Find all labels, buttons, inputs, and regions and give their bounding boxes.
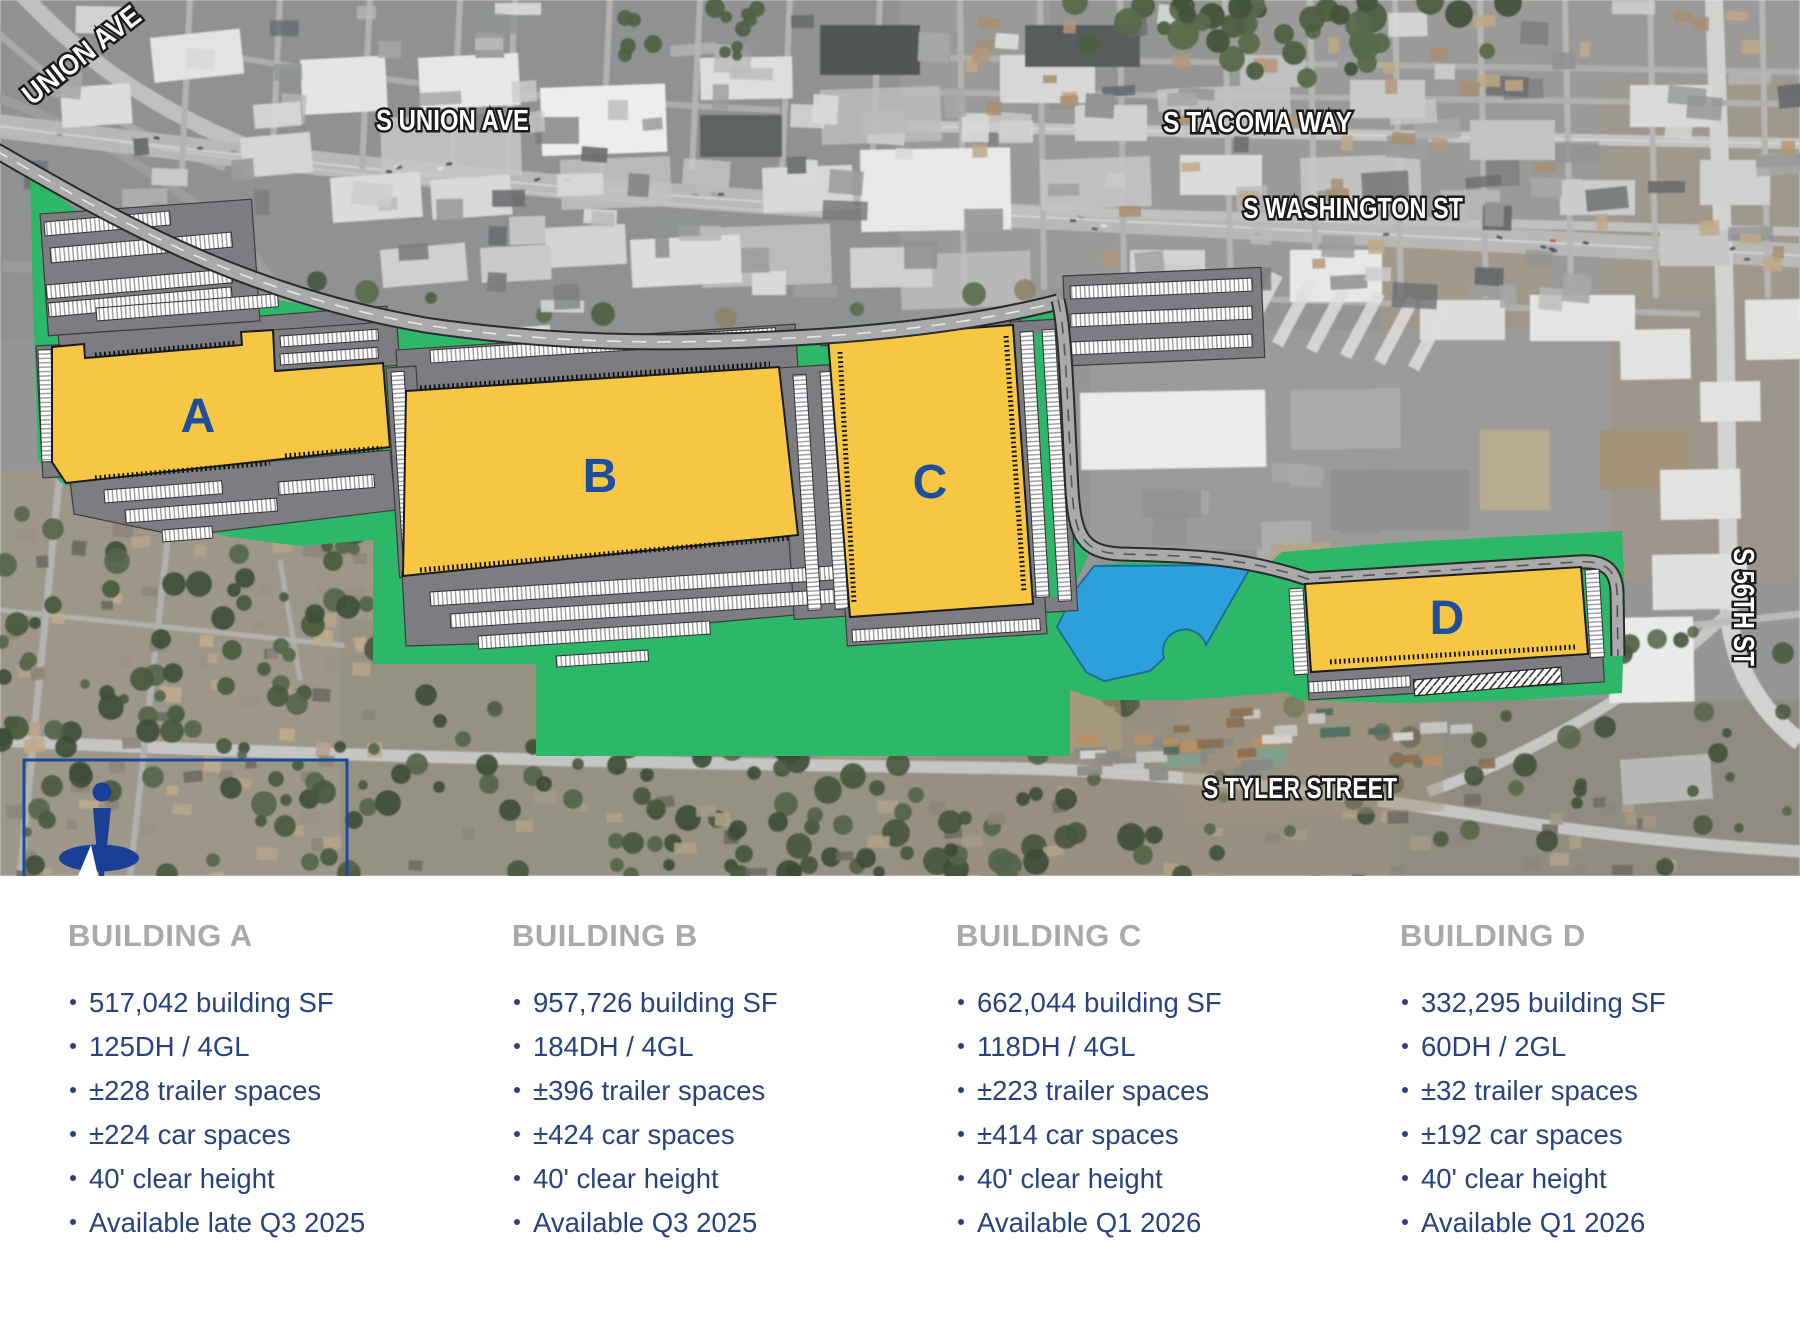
svg-text:S WASHINGTON ST: S WASHINGTON ST <box>1243 193 1463 225</box>
svg-text:S UNION AVE: S UNION AVE <box>376 105 529 137</box>
svg-text:A: A <box>181 390 216 443</box>
svg-text:C: C <box>913 456 948 509</box>
svg-text:B: B <box>583 450 618 503</box>
svg-text:D: D <box>1430 592 1465 645</box>
svg-text:S TACOMA WAY: S TACOMA WAY <box>1163 107 1352 139</box>
svg-text:S 56TH ST: S 56TH ST <box>1727 548 1759 666</box>
svg-text:S TYLER STREET: S TYLER STREET <box>1203 773 1397 805</box>
